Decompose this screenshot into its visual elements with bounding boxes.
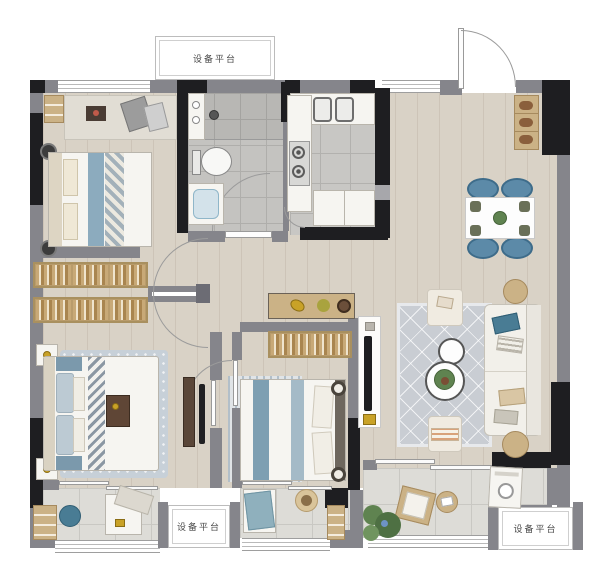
kitchen-cabinet-bottom	[313, 190, 375, 226]
bedroom1-window	[58, 80, 150, 93]
bedroom2-balcony-slider	[242, 481, 292, 485]
kitchen-sink	[335, 97, 354, 122]
shower-head	[209, 110, 219, 120]
sofa-backrest	[526, 305, 541, 435]
side-table	[503, 279, 528, 304]
tv-panel	[358, 316, 381, 428]
washer-panel	[495, 471, 519, 476]
kitchen-window	[382, 80, 440, 93]
sofa-pillow-gray	[493, 409, 518, 425]
master-tv-screen	[199, 384, 205, 444]
closet-unit	[271, 334, 309, 355]
master-tv-cabinet	[183, 377, 195, 447]
living-balcony-slider	[375, 459, 435, 464]
stove-burner	[292, 165, 305, 178]
living-west-wall	[348, 418, 360, 490]
vanity-faucet	[192, 116, 200, 124]
bathroom-door-leaf	[225, 231, 272, 238]
master-balcony-window	[55, 540, 160, 553]
bed-pillow	[312, 431, 335, 474]
wall-segment	[557, 465, 570, 510]
toilet-tank	[192, 150, 201, 175]
table-centerpiece-plant	[493, 211, 507, 225]
wall-segment	[158, 502, 168, 548]
bed-throw-blue	[291, 380, 304, 480]
bed-headboard	[49, 153, 62, 246]
bedroom2-bed	[240, 379, 346, 481]
equipment-platform-bottom-right: 设备平台	[498, 507, 573, 550]
wall-segment	[207, 80, 285, 93]
wall-segment	[551, 382, 570, 465]
closet-row	[33, 262, 148, 288]
bedroom2-wardrobe	[268, 331, 352, 358]
closet-unit	[36, 300, 71, 320]
sofa-pillow-tan	[498, 388, 526, 407]
master-east-wall	[210, 428, 222, 488]
wall-segment	[230, 502, 240, 548]
wall-segment	[375, 185, 390, 200]
bed-headboard	[44, 357, 55, 470]
closet-unit	[110, 265, 145, 285]
equipment-platform-top: 设备平台	[155, 36, 275, 80]
floor-plan: 设备平台 设备平台 设备平台	[0, 0, 600, 580]
bed-runner-blue	[88, 153, 104, 246]
place-setting	[470, 225, 481, 236]
equipment-platform-label: 设备平台	[499, 508, 572, 549]
bed-pillow-inner	[73, 377, 85, 411]
closet-unit	[36, 265, 71, 285]
round-stool	[331, 467, 346, 482]
round-stool	[331, 381, 346, 396]
equipment-platform-bottom-left: 设备平台	[168, 505, 230, 548]
bed-pillow	[56, 373, 74, 413]
bedroom1-bed	[48, 152, 152, 247]
bed-throw-checkered	[105, 153, 124, 246]
shoes	[519, 135, 533, 144]
wall-segment	[516, 80, 542, 93]
sofa-pillow-striped	[496, 335, 524, 353]
pouf-blanket	[431, 428, 459, 441]
tv-screen	[364, 336, 372, 411]
closet-unit	[73, 265, 108, 285]
balcony-separator-wall	[350, 490, 363, 548]
wall-segment	[300, 80, 350, 93]
wall-segment	[30, 113, 43, 205]
equipment-platform-label: 设备平台	[156, 37, 274, 79]
bedroom1-south-wall	[43, 247, 140, 258]
washing-machine	[488, 466, 523, 509]
bed-pillow-inner	[73, 418, 85, 452]
wall-segment	[30, 93, 43, 113]
sofa-cushion-line	[485, 371, 526, 372]
closet-unit	[311, 334, 349, 355]
place-setting	[519, 201, 530, 212]
chaise-blanket-blue	[244, 490, 275, 530]
bed-throw-blue	[56, 456, 82, 470]
washer-drum	[497, 483, 514, 500]
balcony-shelf	[327, 505, 345, 540]
balcony-flower	[381, 520, 388, 527]
shoes	[519, 118, 533, 127]
bedroom2-west-wall	[232, 332, 242, 360]
bedroom2-door-leaf	[233, 360, 238, 406]
bath-sink-basin	[193, 189, 219, 219]
tray-decor	[93, 110, 99, 116]
living-balcony-slider	[430, 465, 492, 470]
balcony-vase	[59, 505, 81, 527]
dining-chair	[467, 237, 499, 259]
wall-segment	[547, 468, 557, 505]
sideboard-decor-plant	[317, 299, 330, 312]
bed-pillow	[63, 203, 78, 240]
place-setting	[519, 225, 530, 236]
equipment-platform-label: 设备平台	[169, 506, 229, 547]
dining-chair	[501, 237, 533, 259]
wall-segment	[45, 80, 58, 93]
bench-decor	[115, 519, 125, 527]
wall-segment	[30, 80, 45, 93]
bedroom1-corner-shelf	[44, 95, 64, 123]
sofa-pillow-teal	[492, 312, 521, 334]
bed-pillow	[56, 415, 74, 455]
straw-hat-band	[301, 495, 312, 506]
balcony-plant	[363, 525, 379, 541]
kitchen-south-wall	[300, 227, 388, 240]
shoes	[519, 101, 533, 110]
master-bed	[43, 356, 159, 471]
bed-throw-blue	[56, 357, 82, 371]
tray-item	[112, 403, 119, 410]
vanity-faucet	[192, 101, 200, 109]
side-table	[502, 431, 529, 458]
toilet-bowl	[201, 147, 232, 176]
plant-pot	[441, 377, 449, 385]
kitchen-east-wall	[375, 88, 390, 185]
master-balcony-slider	[59, 481, 109, 485]
entry-door-arc	[461, 30, 516, 87]
wall-segment	[150, 80, 177, 93]
place-setting	[470, 201, 481, 212]
bed-pillow	[63, 159, 78, 196]
bed-runner-zigzag	[88, 357, 105, 470]
sofa	[484, 304, 541, 436]
closet-unit	[73, 300, 108, 320]
balcony-shelf	[33, 505, 57, 540]
tv-decor	[365, 322, 375, 331]
bedroom2-balcony-window	[242, 538, 330, 551]
closet-unit	[110, 300, 145, 320]
bathroom-west-wall	[177, 82, 188, 233]
kitchen-sink	[313, 97, 332, 122]
wall-segment	[43, 480, 59, 490]
bed-throw-blue	[253, 380, 269, 480]
wall-segment	[557, 155, 570, 382]
tv-stand-decor	[363, 414, 376, 425]
wall-segment	[488, 502, 498, 550]
stove-burner	[292, 146, 305, 159]
closet-row	[33, 297, 148, 323]
wall-segment	[272, 231, 288, 242]
wall-segment	[573, 502, 583, 550]
corner-wall	[542, 80, 570, 155]
sideboard-decor-bowl	[337, 299, 351, 313]
bed-tray	[106, 395, 130, 427]
